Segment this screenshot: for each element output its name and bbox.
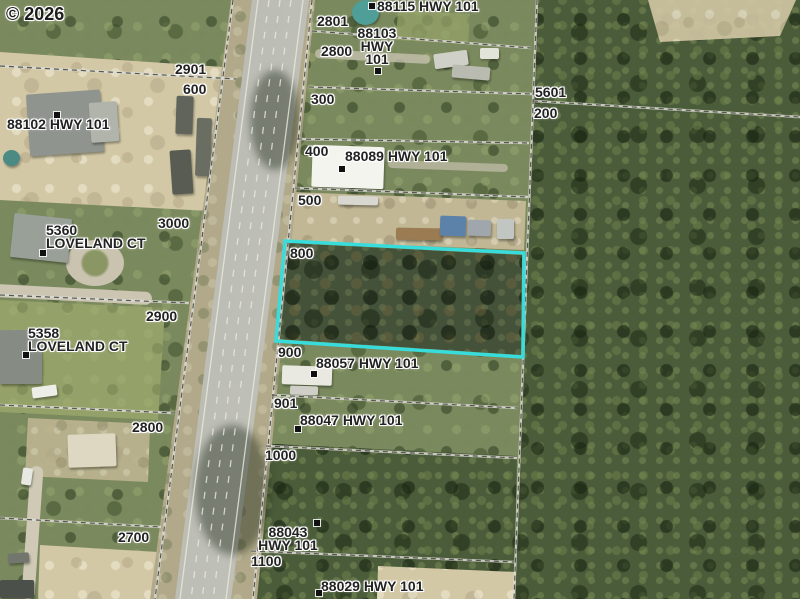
- structure-building-sw: [67, 433, 116, 468]
- site-marker-88043: [314, 520, 320, 526]
- site-marker-5358: [23, 352, 29, 358]
- structure-shed-88057: [290, 386, 318, 396]
- tree-shadow-road-north: [250, 70, 300, 170]
- site-marker-88089: [339, 166, 345, 172]
- site-marker-88102: [54, 112, 60, 118]
- lot-number-label-2700: 2700: [118, 531, 149, 544]
- structure-shed-88089: [338, 196, 378, 206]
- address-label-88102: 88102 HWY 101: [7, 118, 109, 131]
- lot-number-label-900: 900: [278, 346, 301, 359]
- lot-number-label-800: 800: [290, 247, 313, 260]
- site-marker-88047: [295, 426, 301, 432]
- structure-pond-west: [3, 150, 20, 166]
- structure-trailer-nw-a: [175, 96, 193, 135]
- structure-rv-gray: [468, 220, 492, 237]
- lot-number-label-1100: 1100: [251, 555, 281, 568]
- lot-number-label-2900: 2900: [146, 310, 177, 323]
- site-marker-5360: [40, 250, 46, 256]
- address-label-88115: 88115 HWY 101: [377, 0, 479, 13]
- address-label-88103: 88103 HWY 101: [345, 27, 409, 66]
- address-label-88043: 88043 HWY 101: [256, 526, 320, 552]
- lot-number-label-2801: 2801: [317, 15, 348, 28]
- structure-trailer-500: [497, 219, 514, 239]
- site-marker-88029: [316, 590, 322, 596]
- lot-number-label-3000: 3000: [158, 217, 189, 230]
- structure-car-sw: [8, 552, 30, 563]
- site-marker-88115: [369, 3, 375, 9]
- address-label-88089: 88089 HWY 101: [345, 150, 447, 163]
- structure-trailer-nw-c: [169, 149, 193, 194]
- lot-number-label-400: 400: [305, 145, 328, 158]
- address-label-88057: 88057 HWY 101: [316, 357, 418, 370]
- structure-clutter-88103-c: [480, 48, 499, 59]
- site-marker-88057: [311, 371, 317, 377]
- copyright-watermark: © 2026: [6, 4, 64, 25]
- structure-shed-s: [0, 580, 34, 598]
- lot-number-label-200: 200: [534, 107, 557, 120]
- address-label-5360: 5360 LOVELAND CT: [46, 224, 146, 250]
- address-label-88029: 88029 HWY 101: [321, 580, 423, 593]
- address-label-88047: 88047 HWY 101: [300, 414, 402, 427]
- lot-number-label-901: 901: [274, 397, 297, 410]
- lot-number-label-1000: 1000: [265, 449, 296, 462]
- lot-number-label-500: 500: [298, 194, 321, 207]
- lot-number-label-2901: 2901: [175, 63, 206, 76]
- lot-number-label-2800-s: 2800: [132, 421, 163, 434]
- site-marker-88103: [375, 68, 381, 74]
- structure-rv-blue: [440, 216, 467, 237]
- structure-trailer-nw-b: [195, 118, 212, 176]
- structure-truck-500: [396, 228, 442, 241]
- aerial-parcel-map[interactable]: 88115 HWY 101280188103 HWY 1012800290160…: [0, 0, 800, 599]
- lot-number-label-5601: 5601: [535, 86, 566, 99]
- lot-number-label-600: 600: [183, 83, 206, 96]
- lot-number-label-300: 300: [311, 93, 334, 106]
- address-label-5358: 5358 LOVELAND CT: [28, 327, 128, 353]
- lot-number-label-2800-n: 2800: [321, 45, 352, 58]
